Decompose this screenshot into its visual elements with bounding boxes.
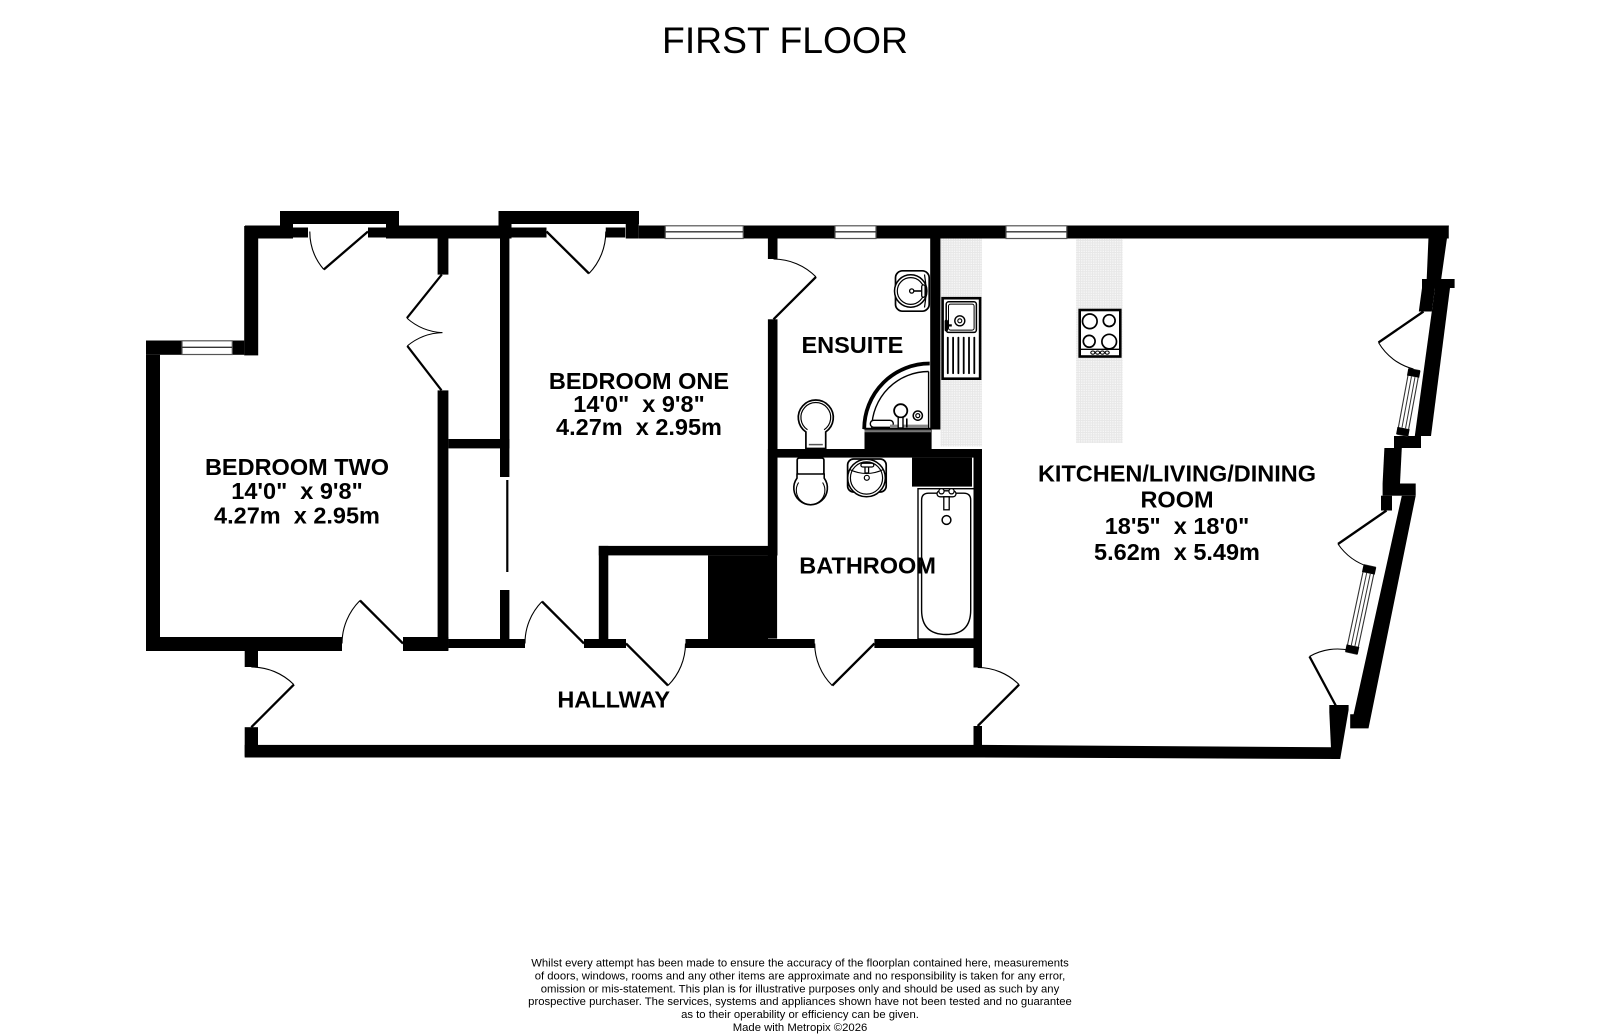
svg-text:as to their operability or eff: as to their operability or efficiency ca… (681, 1009, 919, 1021)
svg-text:prospective purchaser. The ser: prospective purchaser. The services, sys… (528, 996, 1072, 1008)
svg-text:HALLWAY: HALLWAY (557, 687, 670, 713)
svg-text:FIRST FLOOR: FIRST FLOOR (662, 19, 908, 61)
svg-text:BATHROOM: BATHROOM (799, 553, 936, 579)
svg-text:BEDROOM TWO: BEDROOM TWO (205, 454, 389, 480)
svg-text:of doors, windows, rooms and a: of doors, windows, rooms and any other i… (535, 970, 1066, 982)
svg-text:KITCHEN/LIVING/DINING: KITCHEN/LIVING/DINING (1038, 461, 1316, 487)
svg-text:4.27m x 2.95m: 4.27m x 2.95m (556, 414, 722, 440)
svg-text:ROOM: ROOM (1140, 487, 1213, 513)
svg-text:14'0" x 9'8": 14'0" x 9'8" (231, 478, 362, 504)
svg-text:4.27m x 2.95m: 4.27m x 2.95m (214, 502, 380, 528)
svg-text:Made with Metropix ©2026: Made with Metropix ©2026 (733, 1022, 868, 1034)
svg-text:omission or mis-statement. Thi: omission or mis-statement. This plan is … (541, 983, 1060, 995)
svg-text:18'5" x 18'0": 18'5" x 18'0" (1105, 513, 1250, 539)
svg-text:ENSUITE: ENSUITE (801, 332, 903, 358)
svg-text:Whilst every attempt has been: Whilst every attempt has been made to en… (531, 958, 1069, 970)
svg-text:5.62m x 5.49m: 5.62m x 5.49m (1094, 539, 1260, 565)
